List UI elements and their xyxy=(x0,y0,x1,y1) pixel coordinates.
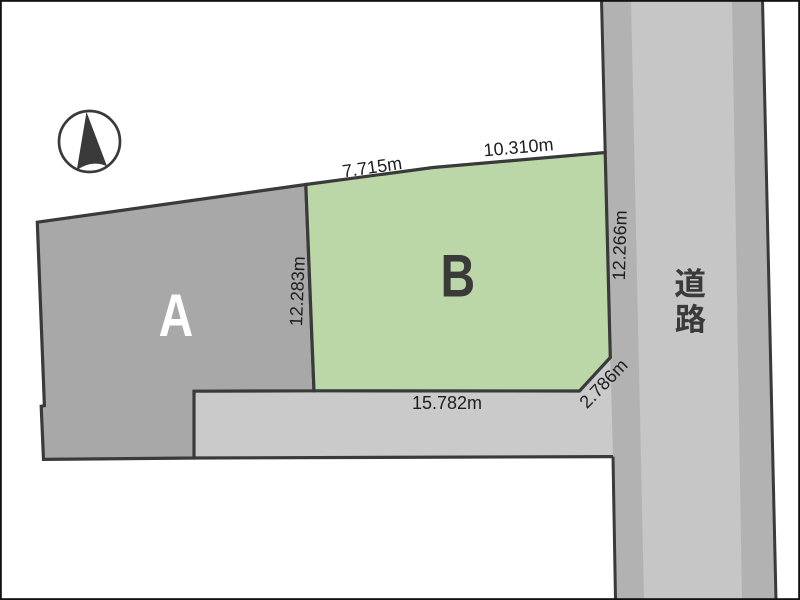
svg-text:12.266m: 12.266m xyxy=(609,210,631,281)
svg-text:15.782m: 15.782m xyxy=(412,393,482,413)
svg-text:12.283m: 12.283m xyxy=(286,256,309,327)
svg-text:B: B xyxy=(440,243,475,310)
svg-text:A: A xyxy=(159,282,194,349)
